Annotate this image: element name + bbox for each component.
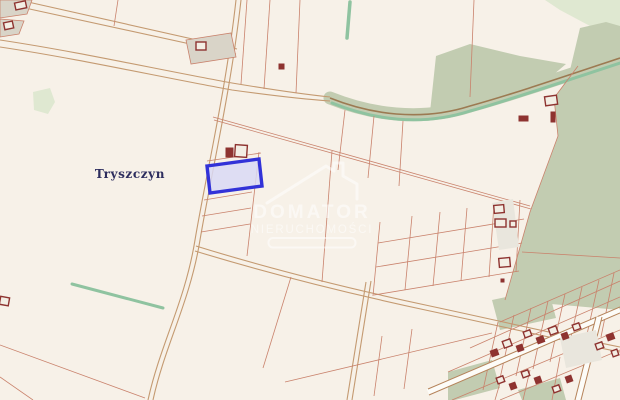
building <box>14 1 26 10</box>
building <box>545 95 558 106</box>
building <box>196 42 206 50</box>
building <box>494 205 505 214</box>
building <box>509 382 517 390</box>
building <box>501 279 504 282</box>
building <box>523 330 532 338</box>
building <box>495 219 506 227</box>
map-viewport: Tryszczyn DOMATOR NIERUCHOMOŚCI <box>0 0 620 400</box>
building <box>565 375 573 383</box>
watermark-subtitle: NIERUCHOMOŚCI <box>251 223 373 236</box>
building <box>572 323 581 331</box>
building <box>279 64 284 69</box>
watermark-brand: DOMATOR <box>253 202 370 223</box>
building <box>510 221 516 227</box>
building <box>521 370 530 378</box>
highlighted-parcel[interactable] <box>207 159 262 193</box>
building <box>519 116 528 121</box>
map-canvas[interactable]: Tryszczyn DOMATOR NIERUCHOMOŚCI <box>0 0 620 400</box>
building <box>595 342 604 350</box>
place-label: Tryszczyn <box>95 167 165 181</box>
building <box>226 148 233 157</box>
building <box>561 332 569 340</box>
building <box>496 376 505 384</box>
building <box>516 344 524 352</box>
building <box>3 21 13 30</box>
building <box>552 385 561 393</box>
building <box>0 296 10 305</box>
building <box>235 145 248 158</box>
building <box>534 376 542 384</box>
building <box>551 112 555 122</box>
building <box>611 349 619 357</box>
building <box>499 257 511 267</box>
